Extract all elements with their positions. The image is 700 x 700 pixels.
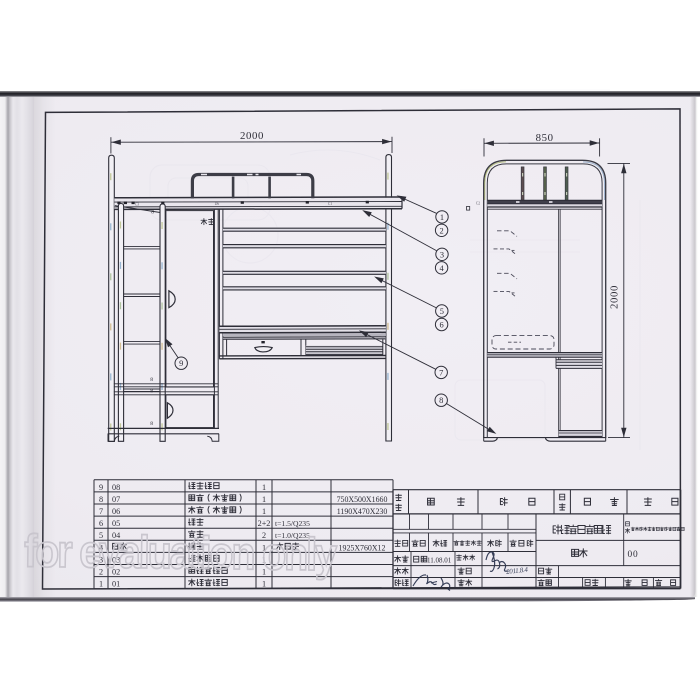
svg-text:C2: C2 (476, 201, 480, 205)
svg-text:850: 850 (536, 132, 554, 144)
svg-text:1: 1 (262, 483, 266, 492)
svg-text:t=1.5/Q235: t=1.5/Q235 (275, 519, 310, 528)
svg-text:11.08.01: 11.08.01 (427, 557, 452, 565)
svg-text:01: 01 (112, 580, 120, 589)
svg-text:8: 8 (439, 396, 443, 405)
svg-text:00: 00 (628, 550, 639, 560)
svg-text:8: 8 (150, 421, 153, 427)
svg-text:1: 1 (440, 213, 444, 222)
svg-text:1925X760X12: 1925X760X12 (339, 543, 386, 552)
svg-text:8: 8 (99, 495, 103, 504)
svg-text:D6: D6 (215, 202, 220, 206)
svg-text:4: 4 (440, 264, 445, 273)
svg-text:1: 1 (99, 580, 103, 589)
svg-text:2000: 2000 (609, 285, 621, 309)
svg-text:5: 5 (440, 307, 444, 316)
svg-text:1: 1 (262, 507, 266, 516)
svg-text:08: 08 (112, 483, 120, 492)
svg-text:9: 9 (99, 483, 103, 492)
svg-text:6: 6 (440, 321, 444, 330)
svg-text:for evaluation only: for evaluation only (24, 526, 338, 581)
svg-text:1190X470X230: 1190X470X230 (337, 507, 388, 516)
svg-text:1: 1 (262, 495, 266, 504)
svg-text:07: 07 (112, 495, 120, 504)
svg-text:3: 3 (440, 250, 444, 259)
svg-text:C1: C1 (328, 202, 332, 206)
svg-text:7: 7 (99, 507, 103, 516)
svg-text:1: 1 (262, 580, 266, 589)
svg-text:2+2: 2+2 (258, 519, 271, 528)
svg-text:2000: 2000 (240, 130, 264, 142)
svg-text:8: 8 (151, 210, 154, 216)
svg-text:9: 9 (179, 359, 183, 368)
svg-text:7: 7 (439, 368, 443, 377)
svg-text:2: 2 (440, 226, 444, 235)
svg-text:8: 8 (150, 377, 153, 383)
svg-text:2011.8.4: 2011.8.4 (506, 566, 529, 576)
svg-text:06: 06 (112, 507, 120, 516)
svg-text:C3: C3 (135, 203, 139, 207)
svg-text:750X500X1660: 750X500X1660 (337, 495, 388, 504)
